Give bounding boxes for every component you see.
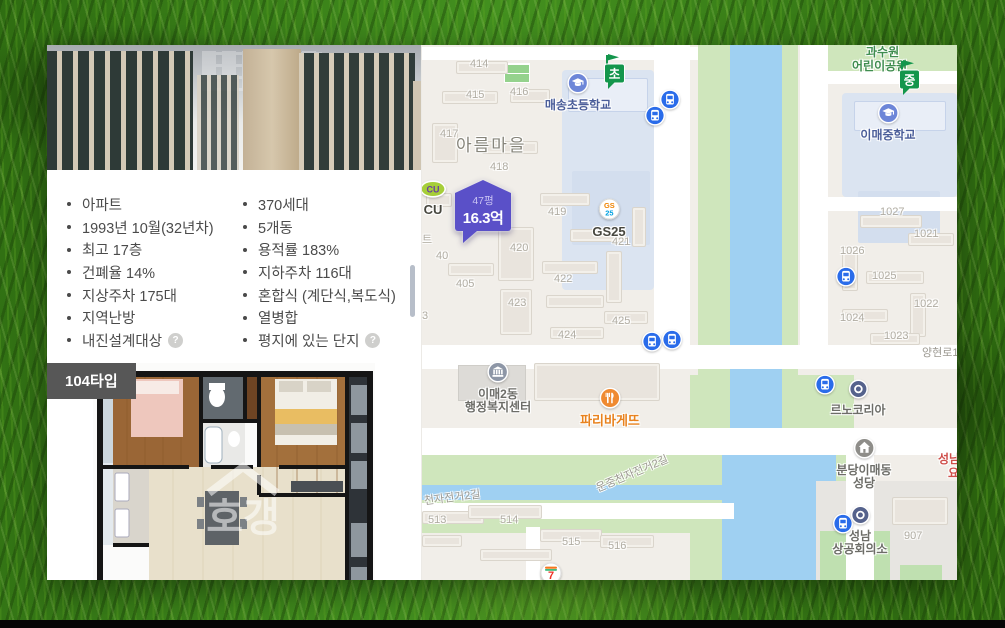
map-building-number: 513 (428, 515, 446, 526)
map-building-number: 1025 (872, 271, 896, 282)
gs-icon: GS25 (598, 198, 620, 225)
map-building-number: 516 (608, 541, 626, 552)
map-road (800, 45, 828, 347)
info-item: 최고 17층 (67, 238, 243, 261)
map-building-number: 트 (422, 235, 432, 246)
poi-gov[interactable]: 이매2동행정복지센터 (465, 361, 531, 415)
svg-text:중: 중 (904, 73, 916, 87)
price-marker-roof (455, 180, 511, 193)
info-item: 건폐율 14% (67, 261, 243, 284)
poi-label: 파리바게뜨 (580, 414, 640, 429)
info-item: 5개동 (243, 216, 396, 239)
map-building-number: 422 (554, 274, 572, 285)
poi-label: 성남상공회의소 (832, 530, 887, 557)
cu-icon: CU (422, 180, 447, 203)
poi-bus[interactable] (662, 329, 683, 355)
map-building-number: 405 (456, 279, 474, 290)
map-building-number: 420 (510, 243, 528, 254)
svg-text:25: 25 (605, 208, 613, 217)
map-water (730, 45, 782, 443)
help-icon[interactable]: ? (168, 333, 183, 348)
poi-bus[interactable] (645, 105, 666, 131)
map-building-number: 514 (500, 515, 518, 526)
poi-label: 매송초등학교 (545, 99, 611, 112)
info-item: 내진설계대상? (67, 329, 243, 352)
info-item-text: 지역난방 (82, 307, 135, 328)
listing-popup: 아파트1993년 10월(32년차)최고 17층건폐율 14%지상주차 175대… (47, 45, 957, 580)
poi-bus[interactable] (836, 266, 857, 292)
info-item-text: 용적률 183% (258, 239, 339, 260)
map-building-number: 418 (490, 162, 508, 173)
bakery-icon (599, 387, 621, 414)
bus-icon (836, 266, 857, 292)
poi-label: 분당이매동성당 (836, 464, 891, 491)
bottom-bar (0, 620, 1005, 628)
poi-seven[interactable]: 7 (540, 562, 562, 580)
school-flag-marker[interactable]: 초 (601, 54, 628, 95)
screenshot-stage: 아파트1993년 10월(32년차)최고 17층건폐율 14%지상주차 175대… (0, 0, 1005, 628)
price-marker-area: 47평 (455, 193, 511, 208)
poi-label: 이매2동행정복지센터 (465, 388, 531, 415)
info-item-text: 최고 17층 (82, 239, 142, 260)
property-info: 아파트1993년 10월(32년차)최고 17층건폐율 14%지상주차 175대… (67, 193, 396, 352)
seven-icon: 7 (540, 562, 562, 580)
info-item-text: 370세대 (258, 194, 309, 215)
map-building-number: 1027 (880, 207, 904, 218)
info-list-right: 370세대5개동용적률 183%지하주차 116대혼합식 (계단식,복도식)열병… (243, 193, 396, 352)
map-building-number: 3 (422, 311, 428, 322)
panel-scrollbar-thumb[interactable] (410, 265, 415, 317)
map-building-number: 907 (904, 531, 922, 542)
floorplan-watermark: 호갱 (206, 496, 280, 540)
poi-church[interactable]: 분당이매동성당 (836, 437, 891, 491)
bus-icon (642, 331, 663, 357)
info-item: 1993년 10월(32년차) (67, 216, 243, 239)
info-item: 평지에 있는 단지? (243, 329, 396, 352)
map-building (546, 295, 604, 308)
poi-cu[interactable]: CUCU (422, 180, 447, 218)
map-place-label: 요 (948, 467, 957, 479)
school-flag-marker[interactable]: 중 (896, 60, 923, 101)
map-building-number: 1023 (884, 331, 908, 342)
info-item-text: 아파트 (82, 194, 122, 215)
info-item: 아파트 (67, 193, 243, 216)
map-building (500, 289, 532, 335)
poi-bus[interactable] (642, 331, 663, 357)
info-item-text: 건폐율 14% (82, 262, 155, 283)
info-item-text: 혼합식 (계단식,복도식) (258, 285, 396, 306)
school-icon (877, 102, 899, 129)
map-building-number: 424 (558, 330, 576, 341)
map-building-number: 1024 (840, 313, 864, 324)
map-building (606, 251, 622, 303)
photo-trees (47, 132, 422, 170)
school-icon (567, 72, 589, 99)
info-item: 지역난방 (67, 306, 243, 329)
map-building-number: 1026 (840, 246, 864, 257)
map-building (632, 207, 646, 247)
map-place-label: 성남 (938, 453, 957, 465)
map-building (480, 549, 552, 561)
map-building-number: 416 (510, 87, 528, 98)
info-item: 지상주차 175대 (67, 284, 243, 307)
apartment-photo[interactable] (47, 45, 422, 170)
price-marker-price: 16.3억 (455, 207, 511, 228)
map-building-number: 415 (466, 90, 484, 101)
map-building-number: 423 (508, 298, 526, 309)
property-panel: 아파트1993년 10월(32년차)최고 17층건폐율 14%지상주차 175대… (47, 45, 422, 580)
poi-bakery[interactable]: 파리바게뜨 (580, 387, 640, 429)
gov-icon (487, 361, 509, 388)
map-building (540, 193, 590, 206)
info-item-text: 내진설계대상 (82, 330, 162, 351)
svg-text:초: 초 (609, 67, 621, 81)
map-building (892, 497, 948, 525)
poi-label: GS25 (592, 225, 625, 240)
map-building (448, 263, 494, 276)
map-building-number: 1022 (914, 299, 938, 310)
map-green-area (900, 565, 942, 580)
company-icon (848, 379, 868, 404)
info-item-text: 지하주차 116대 (258, 262, 352, 283)
bus-icon (645, 105, 666, 131)
bus-icon (662, 329, 683, 355)
poi-label: CU (424, 203, 443, 218)
info-item: 지하주차 116대 (243, 261, 396, 284)
info-item: 혼합식 (계단식,복도식) (243, 284, 396, 307)
info-item: 열병합 (243, 306, 396, 329)
church-icon (853, 437, 875, 464)
help-icon[interactable]: ? (365, 333, 380, 348)
info-item-text: 열병합 (258, 307, 298, 328)
poi-company[interactable]: 르노코리아 (830, 379, 885, 417)
map-building-number: 425 (612, 316, 630, 327)
floorplan-section: 호갱 104타입 (47, 363, 422, 580)
price-marker-tail (463, 231, 477, 243)
map-building (422, 535, 462, 547)
price-marker[interactable]: 47평 16.3억 (455, 180, 511, 243)
map-building-number: 1021 (914, 229, 938, 240)
info-item-text: 평지에 있는 단지 (258, 330, 359, 351)
map-building-number: 419 (548, 207, 566, 218)
map-building-number: 40 (436, 251, 448, 262)
price-marker-body: 47평 16.3억 (455, 193, 511, 231)
info-item-text: 지상주차 175대 (82, 285, 177, 306)
poi-gs[interactable]: GS25GS25 (592, 198, 625, 240)
map-building-number: 515 (562, 537, 580, 548)
svg-text:7: 7 (548, 570, 554, 580)
map-canvas[interactable]: 4144154164174184194204214224234244254054… (422, 45, 957, 580)
poi-label: 이매중학교 (860, 129, 915, 142)
poi-school[interactable]: 이매중학교 (860, 102, 915, 142)
svg-text:CU: CU (427, 184, 440, 194)
company-icon (850, 505, 870, 530)
map-road-label: 양현로11 (922, 348, 957, 359)
poi-label: 르노코리아 (830, 404, 885, 417)
info-list-left: 아파트1993년 10월(32년차)최고 17층건폐율 14%지상주차 175대… (67, 193, 243, 352)
info-item-text: 5개동 (258, 217, 293, 238)
info-item: 용적률 183% (243, 238, 396, 261)
poi-company[interactable]: 성남상공회의소 (832, 505, 887, 557)
info-item-text: 1993년 10월(32년차) (82, 217, 214, 238)
map-place-label: 과수원 (866, 46, 899, 58)
map-building-number: 414 (470, 59, 488, 70)
floorplan-type-tag[interactable]: 104타입 (47, 363, 136, 399)
map-place-label: 아름마을 (456, 137, 527, 154)
info-item: 370세대 (243, 193, 396, 216)
